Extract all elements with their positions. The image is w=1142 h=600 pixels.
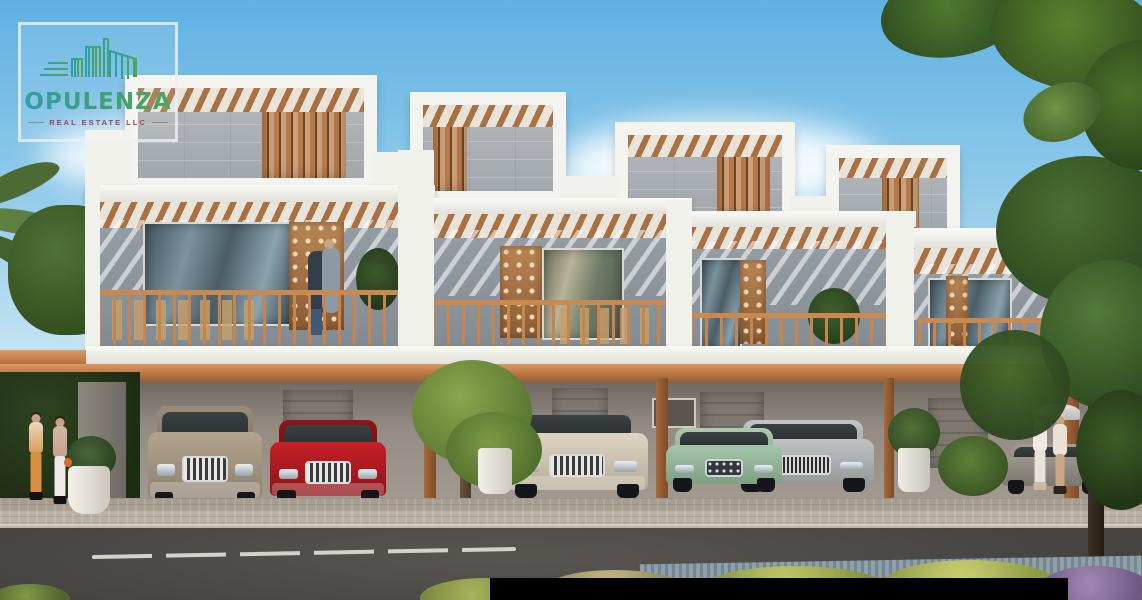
planter-pot-right (898, 448, 930, 492)
tagline-dash (28, 122, 44, 123)
brand-tagline: REAL ESTATE LLC (49, 118, 147, 127)
roof-pergola-slats (839, 158, 947, 178)
pedestrian-woman-1 (26, 414, 46, 518)
rendered-photo: OPULENZA REAL ESTATE LLC (0, 0, 1142, 600)
roof-pergola-slats (423, 105, 553, 127)
slab-unit-2 (400, 198, 692, 214)
tagline-dash (152, 122, 168, 123)
car-beige-suv (148, 406, 262, 506)
brand-name: OPULENZA (24, 91, 171, 114)
watermark-logo: OPULENZA REAL ESTATE LLC (18, 22, 178, 142)
tree-right (960, 330, 1070, 440)
pedestrian-woman-2 (50, 418, 70, 522)
visitor-right-2 (1050, 416, 1070, 508)
slab-unit-3 (666, 211, 916, 227)
balcony-floor-slab (85, 346, 1090, 364)
handbag (64, 458, 72, 467)
black-bar (490, 578, 1068, 600)
car-green-sedan (666, 428, 782, 492)
divider-pillar (666, 200, 692, 355)
car-red-sedan (270, 420, 386, 504)
divider-pillar (85, 130, 100, 352)
planter-pot-left (68, 466, 110, 514)
slab-unit-1 (85, 185, 435, 202)
balcony-railing-unit-1 (98, 290, 398, 350)
divider-pillar (886, 212, 914, 358)
divider-pillar (398, 150, 434, 352)
planter-pot-middle (478, 448, 512, 494)
roof-pergola-slats (628, 135, 782, 157)
bush-right (938, 436, 1008, 496)
skyline-buildings-icon (38, 37, 158, 89)
